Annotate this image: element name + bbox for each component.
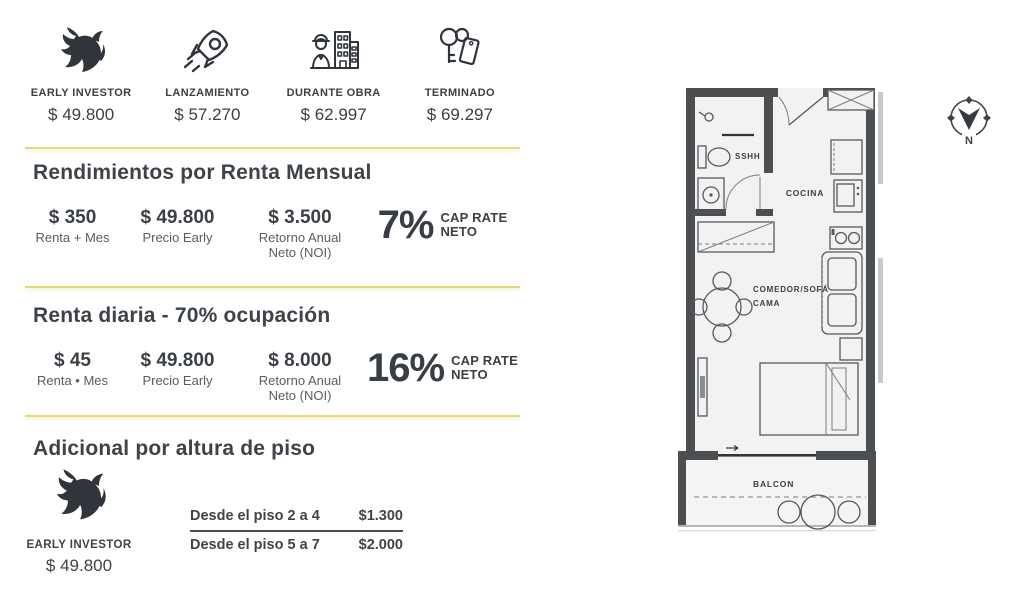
tier-label: EARLY INVESTOR xyxy=(31,87,132,99)
tier-label: DURANTE OBRA xyxy=(287,87,381,99)
stat-cap-rate: 16% CAP RATE NETO xyxy=(365,350,520,386)
daily-stats-row: $ 45 Renta • Mes $ 49.800 Precio Early $… xyxy=(25,350,520,404)
section-title-floor-height: Adicional por altura de piso xyxy=(33,437,315,461)
stat-renta-mes: $ 45 Renta • Mes xyxy=(25,350,120,389)
monthly-stats-row: $ 350 Renta + Mes $ 49.800 Precio Early … xyxy=(25,207,520,261)
tier-terminado: TERMINADO $ 69.297 xyxy=(397,22,523,125)
early-investor-block: EARLY INVESTOR $ 49.800 xyxy=(14,466,144,576)
pricing-tier-row: EARLY INVESTOR $ 49.800 LANZAMIENTO $ 57… xyxy=(18,22,523,125)
compass-north-label: N xyxy=(965,135,973,147)
tier-price: $ 49.800 xyxy=(48,105,114,125)
table-row: Desde el piso 5 a 7 $2.000 xyxy=(190,530,403,559)
balcony-label: BALCON xyxy=(753,479,794,489)
row-label: Desde el piso 2 a 4 xyxy=(190,508,320,524)
tier-early-investor: EARLY INVESTOR $ 49.800 xyxy=(18,22,144,125)
kitchen-label: COCINA xyxy=(786,188,824,198)
row-value: $1.300 xyxy=(359,508,403,524)
stat-precio-early: $ 49.800 Precio Early xyxy=(120,350,235,389)
tier-label: LANZAMIENTO xyxy=(165,87,249,99)
tier-lanzamiento: LANZAMIENTO $ 57.270 xyxy=(144,22,270,125)
row-label: Desde el piso 5 a 7 xyxy=(190,537,320,553)
tier-label: TERMINADO xyxy=(425,87,495,99)
stat-cap-rate: 7% CAP RATE NETO xyxy=(365,207,520,243)
balcony-floor xyxy=(678,459,876,527)
tier-price: $ 69.297 xyxy=(427,105,493,125)
tier-durante-obra: DURANTE OBRA $ 62.997 xyxy=(271,22,397,125)
sliding-door xyxy=(718,454,816,457)
bathroom-label: SSHH xyxy=(735,152,760,161)
living-label-line2: CAMA xyxy=(753,299,780,308)
construction-icon xyxy=(307,22,361,78)
stat-retorno-anual: $ 8.000 Retorno Anual Neto (NOI) xyxy=(235,350,365,404)
bull-icon xyxy=(54,22,108,78)
stat-retorno-anual: $ 3.500 Retorno Anual Neto (NOI) xyxy=(235,207,365,261)
bull-icon xyxy=(48,466,110,531)
divider xyxy=(25,415,520,417)
section-title-monthly: Rendimientos por Renta Mensual xyxy=(33,161,372,185)
tier-price: $ 62.997 xyxy=(301,105,367,125)
keys-icon xyxy=(433,22,487,78)
tier-price: $ 57.270 xyxy=(174,105,240,125)
divider xyxy=(25,286,520,288)
row-value: $2.000 xyxy=(359,537,403,553)
table-row: Desde el piso 2 a 4 $1.300 xyxy=(190,503,403,530)
floor-height-table: Desde el piso 2 a 4 $1.300 Desde el piso… xyxy=(190,503,403,559)
unit-floor xyxy=(686,88,875,459)
compass-icon: N xyxy=(941,92,997,159)
investor-label: EARLY INVESTOR xyxy=(26,539,131,551)
floor-plan: SSHH COCINA COMEDOR/SOFÁ CAMA BALCON xyxy=(668,78,898,583)
divider xyxy=(25,147,520,149)
stat-renta-mes: $ 350 Renta + Mes xyxy=(25,207,120,246)
rocket-icon xyxy=(180,22,234,78)
stat-precio-early: $ 49.800 Precio Early xyxy=(120,207,235,246)
section-title-daily: Renta diaria - 70% ocupación xyxy=(33,304,330,328)
investor-price: $ 49.800 xyxy=(46,556,112,576)
north-arrow xyxy=(958,108,980,130)
